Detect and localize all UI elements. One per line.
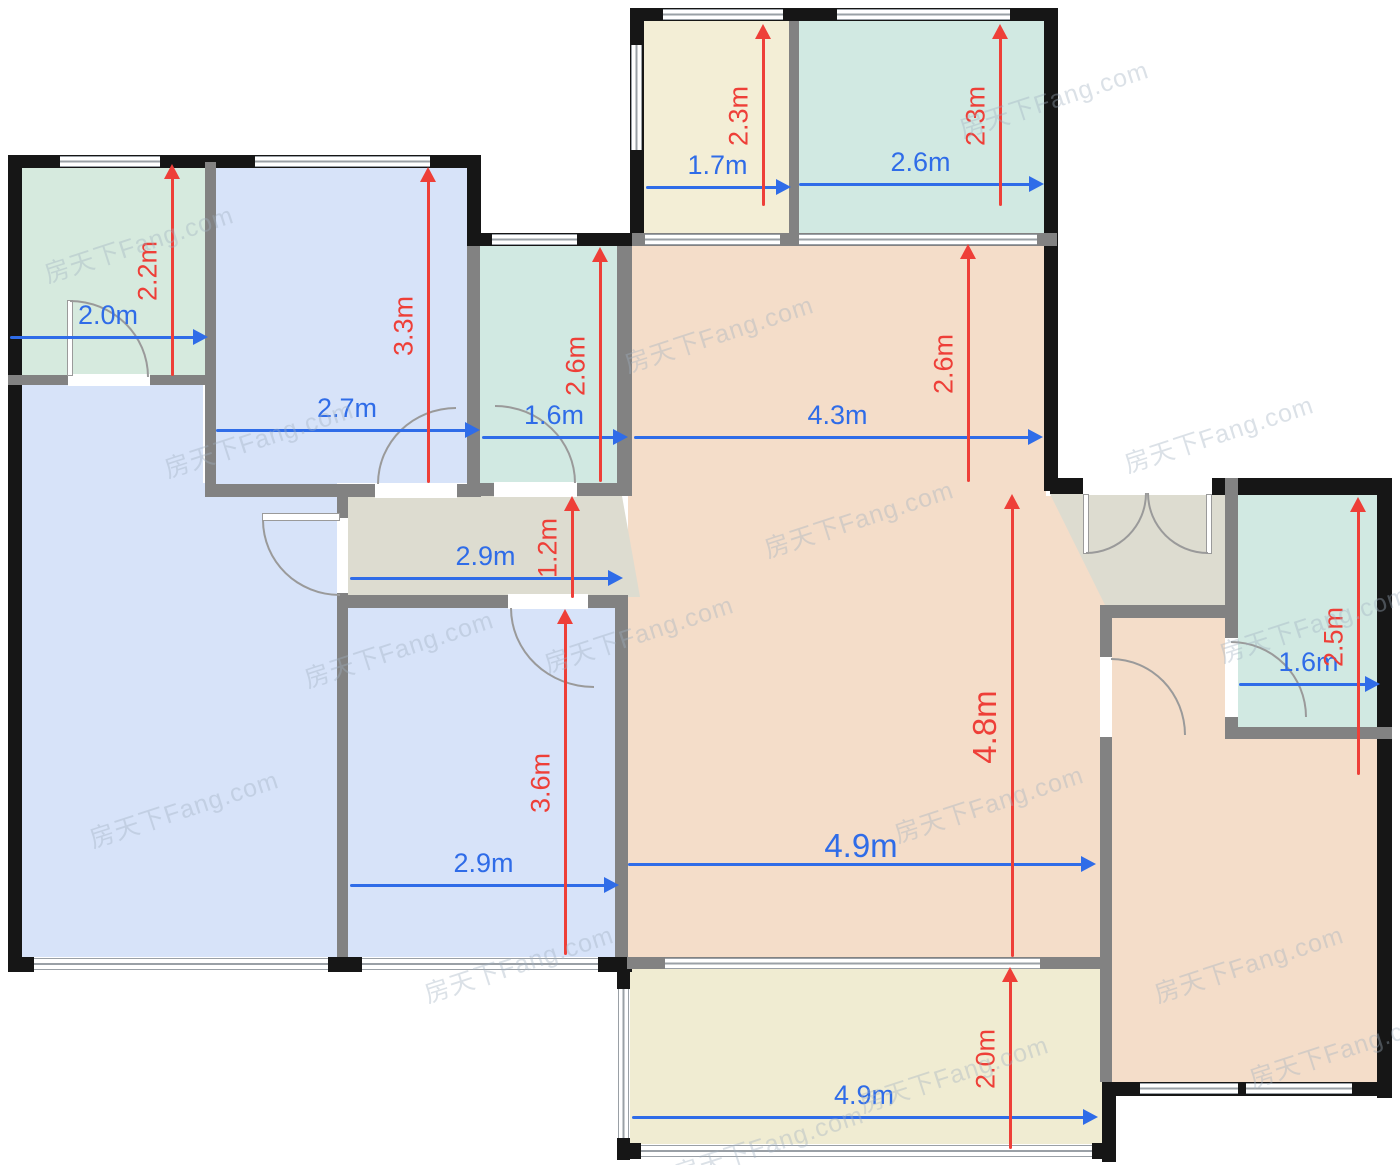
dim-label: 4.9m: [834, 1080, 894, 1111]
dim-label: 2.0m: [78, 300, 138, 331]
window: [645, 234, 780, 245]
dim-label: 2.0m: [971, 1029, 1002, 1089]
dim-label: 2.9m: [453, 848, 513, 879]
floor-plan: 2.0m 2.7m 1.6m 1.7m 2.6m 4.3m 2.9m 2.9m …: [0, 0, 1400, 1165]
dim-line: [599, 259, 602, 482]
dim-line: [799, 183, 1033, 186]
window: [799, 234, 1037, 245]
arrow-right-icon: [1029, 176, 1044, 192]
wall: [205, 484, 375, 497]
arrow-up-icon: [420, 167, 436, 182]
wall: [205, 385, 216, 497]
dim-label: 1.6m: [524, 400, 584, 431]
dim-label: 2.2m: [133, 241, 164, 301]
wall: [328, 957, 362, 972]
window: [631, 45, 642, 150]
arrow-up-icon: [164, 164, 180, 179]
wall: [617, 1138, 630, 1160]
window: [34, 958, 328, 970]
wall: [1100, 605, 1112, 657]
dim-label: 2.3m: [724, 86, 755, 146]
window: [60, 156, 160, 167]
arrow-right-icon: [1083, 1109, 1098, 1125]
wall: [8, 155, 22, 972]
arrow-up-icon: [1350, 497, 1366, 512]
wall: [337, 603, 348, 957]
dim-line: [571, 508, 574, 598]
window: [1246, 1083, 1352, 1094]
wall: [1092, 1143, 1116, 1159]
wall: [1105, 605, 1237, 618]
dim-line: [634, 436, 1032, 439]
room-dining: [632, 246, 1046, 496]
arrow-right-icon: [1028, 429, 1043, 445]
arrow-right-icon: [1365, 676, 1380, 692]
window: [837, 9, 1010, 20]
door-opening: [508, 594, 588, 609]
dim-line: [1011, 506, 1014, 957]
dim-label: 4.9m: [824, 827, 897, 865]
arrow-up-icon: [592, 247, 608, 262]
arrow-up-icon: [960, 244, 976, 259]
dim-line: [762, 36, 765, 206]
window: [665, 958, 1040, 969]
dim-line: [482, 436, 617, 439]
dim-line: [999, 36, 1002, 206]
dim-line: [427, 179, 430, 483]
dim-label: 4.3m: [807, 400, 867, 431]
arrow-right-icon: [465, 422, 480, 438]
wall: [150, 375, 210, 385]
arrow-right-icon: [1081, 856, 1096, 872]
dim-label: 1.2m: [533, 518, 564, 578]
dim-label: 2.3m: [961, 86, 992, 146]
dim-label: 2.6m: [890, 147, 950, 178]
room-living: [628, 496, 1105, 958]
arrow-right-icon: [193, 329, 208, 345]
dim-label: 2.5m: [1319, 607, 1350, 667]
dim-line: [632, 1116, 1087, 1119]
dim-line: [564, 621, 567, 955]
dim-label: 2.9m: [455, 541, 515, 572]
room-top-right: [799, 21, 1045, 233]
arrow-right-icon: [613, 429, 628, 445]
dim-label: 4.8m: [966, 690, 1004, 763]
wall: [8, 957, 34, 972]
wall: [337, 595, 508, 608]
window: [641, 1145, 1092, 1157]
window: [663, 9, 783, 20]
dim-label: 2.6m: [561, 335, 592, 395]
dim-label: 1.7m: [687, 150, 747, 181]
window: [362, 958, 598, 970]
dim-label: 2.7m: [317, 393, 377, 424]
wall: [205, 162, 216, 388]
dim-label: 3.3m: [389, 296, 420, 356]
wall: [1225, 727, 1392, 739]
wall: [1100, 737, 1112, 1082]
arrow-right-icon: [608, 570, 623, 586]
dim-label: 3.6m: [526, 753, 557, 813]
door-opening: [494, 482, 577, 497]
wall: [1044, 8, 1058, 491]
window: [618, 989, 629, 1138]
wall: [8, 375, 68, 385]
wall: [577, 483, 632, 496]
dim-line: [646, 186, 780, 189]
arrow-up-icon: [992, 24, 1008, 39]
room-balcony-top: [644, 21, 789, 233]
arrow-right-icon: [604, 877, 619, 893]
wall: [617, 246, 632, 496]
dim-line: [216, 429, 469, 432]
wall: [467, 483, 494, 496]
wall: [1377, 478, 1392, 1098]
dim-line: [967, 256, 970, 482]
arrow-up-icon: [755, 24, 771, 39]
wall: [615, 600, 628, 957]
watermark: 房天下Fang.com: [1119, 385, 1318, 480]
arrow-up-icon: [564, 496, 580, 511]
dim-line: [350, 884, 608, 887]
arrow-up-icon: [557, 609, 573, 624]
window: [1140, 1083, 1238, 1094]
dim-line: [10, 336, 197, 339]
window: [255, 156, 430, 167]
door-opening: [375, 483, 457, 498]
dim-line: [171, 176, 174, 376]
dim-line: [1009, 979, 1012, 1149]
wall: [1050, 478, 1083, 494]
wall: [467, 246, 480, 497]
arrow-up-icon: [1002, 967, 1018, 982]
arrow-up-icon: [1004, 494, 1020, 509]
dim-line: [1357, 509, 1360, 775]
wall: [789, 21, 799, 246]
wall: [1212, 478, 1392, 495]
window: [492, 234, 577, 245]
dim-label: 2.6m: [929, 334, 960, 394]
arrow-right-icon: [776, 179, 791, 195]
dim-line: [1239, 683, 1369, 686]
